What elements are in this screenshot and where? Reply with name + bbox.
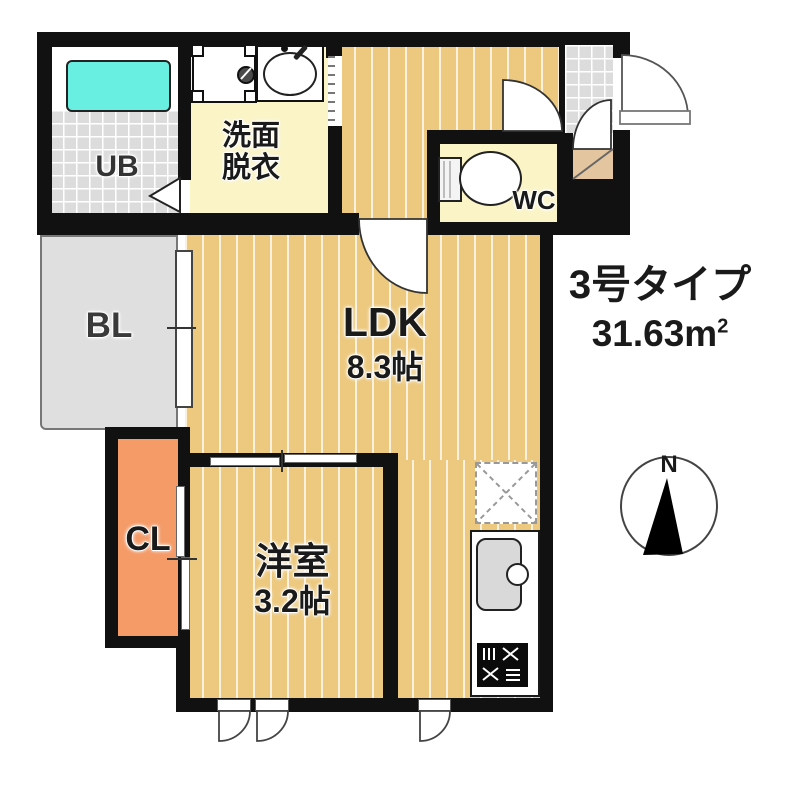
western-room-label: 洋室: [225, 541, 360, 582]
vanity-basin: [263, 52, 317, 96]
washer-pan-corner: [191, 90, 204, 103]
casement-window: [257, 711, 288, 741]
unit-area-value: 31.63m: [592, 313, 718, 354]
vanity-faucet-dot: [281, 45, 288, 52]
floor-plan: UB 洗面 脱衣 WC LDK 8.3帖 3号タイプ 31.63m2 BL CL…: [0, 0, 800, 797]
casement-window: [420, 711, 450, 741]
stove-icon: [477, 643, 528, 687]
casement-window: [219, 711, 250, 741]
accordion-door: [328, 56, 342, 126]
balcony-label: BL: [79, 306, 139, 345]
refrigerator-space: [475, 462, 537, 524]
western-room-size-label: 3.2帖: [225, 584, 360, 620]
hallway-floor-side: [337, 130, 432, 220]
window-slot: [255, 699, 289, 711]
closet-door-panel: [181, 557, 190, 630]
unit-type-title: 3号タイプ: [550, 263, 770, 308]
entrance-step: [573, 149, 613, 179]
hallway-floor-upper: [337, 47, 563, 135]
washer-drain-icon: [237, 66, 255, 84]
closet-label: CL: [118, 520, 178, 558]
washer-pan-corner: [191, 44, 204, 57]
bathtub: [66, 60, 171, 112]
unit-area-sup: 2: [717, 316, 728, 338]
wall: [178, 45, 191, 180]
compass-north-label: N: [654, 452, 684, 479]
washroom-label: 洗面 脱衣: [195, 120, 307, 185]
window-slot: [418, 699, 451, 711]
wall: [37, 32, 52, 235]
washroom-label-line2: 脱衣: [195, 152, 307, 184]
entrance-door-leaf: [620, 111, 690, 124]
washroom-label-line1: 洗面: [195, 120, 307, 152]
wall: [328, 125, 342, 235]
unit-area-label: 31.63m2: [550, 313, 770, 354]
ldk-size-label: 8.3帖: [320, 350, 450, 386]
kitchen-faucet-icon: [506, 563, 529, 586]
bathroom-label: UB: [87, 150, 147, 184]
window-slot: [217, 699, 251, 711]
ldk-label: LDK: [320, 300, 450, 346]
wc-label: WC: [506, 186, 562, 215]
entrance-step-slot: [573, 133, 613, 149]
wall: [383, 465, 398, 700]
balcony-window: [175, 250, 193, 408]
wall: [37, 213, 359, 235]
entrance-tile: [565, 45, 613, 133]
entrance-door-swing: [622, 55, 688, 117]
sliding-door-panel: [284, 454, 357, 463]
wall: [613, 32, 630, 58]
sliding-door-panel: [210, 457, 280, 466]
